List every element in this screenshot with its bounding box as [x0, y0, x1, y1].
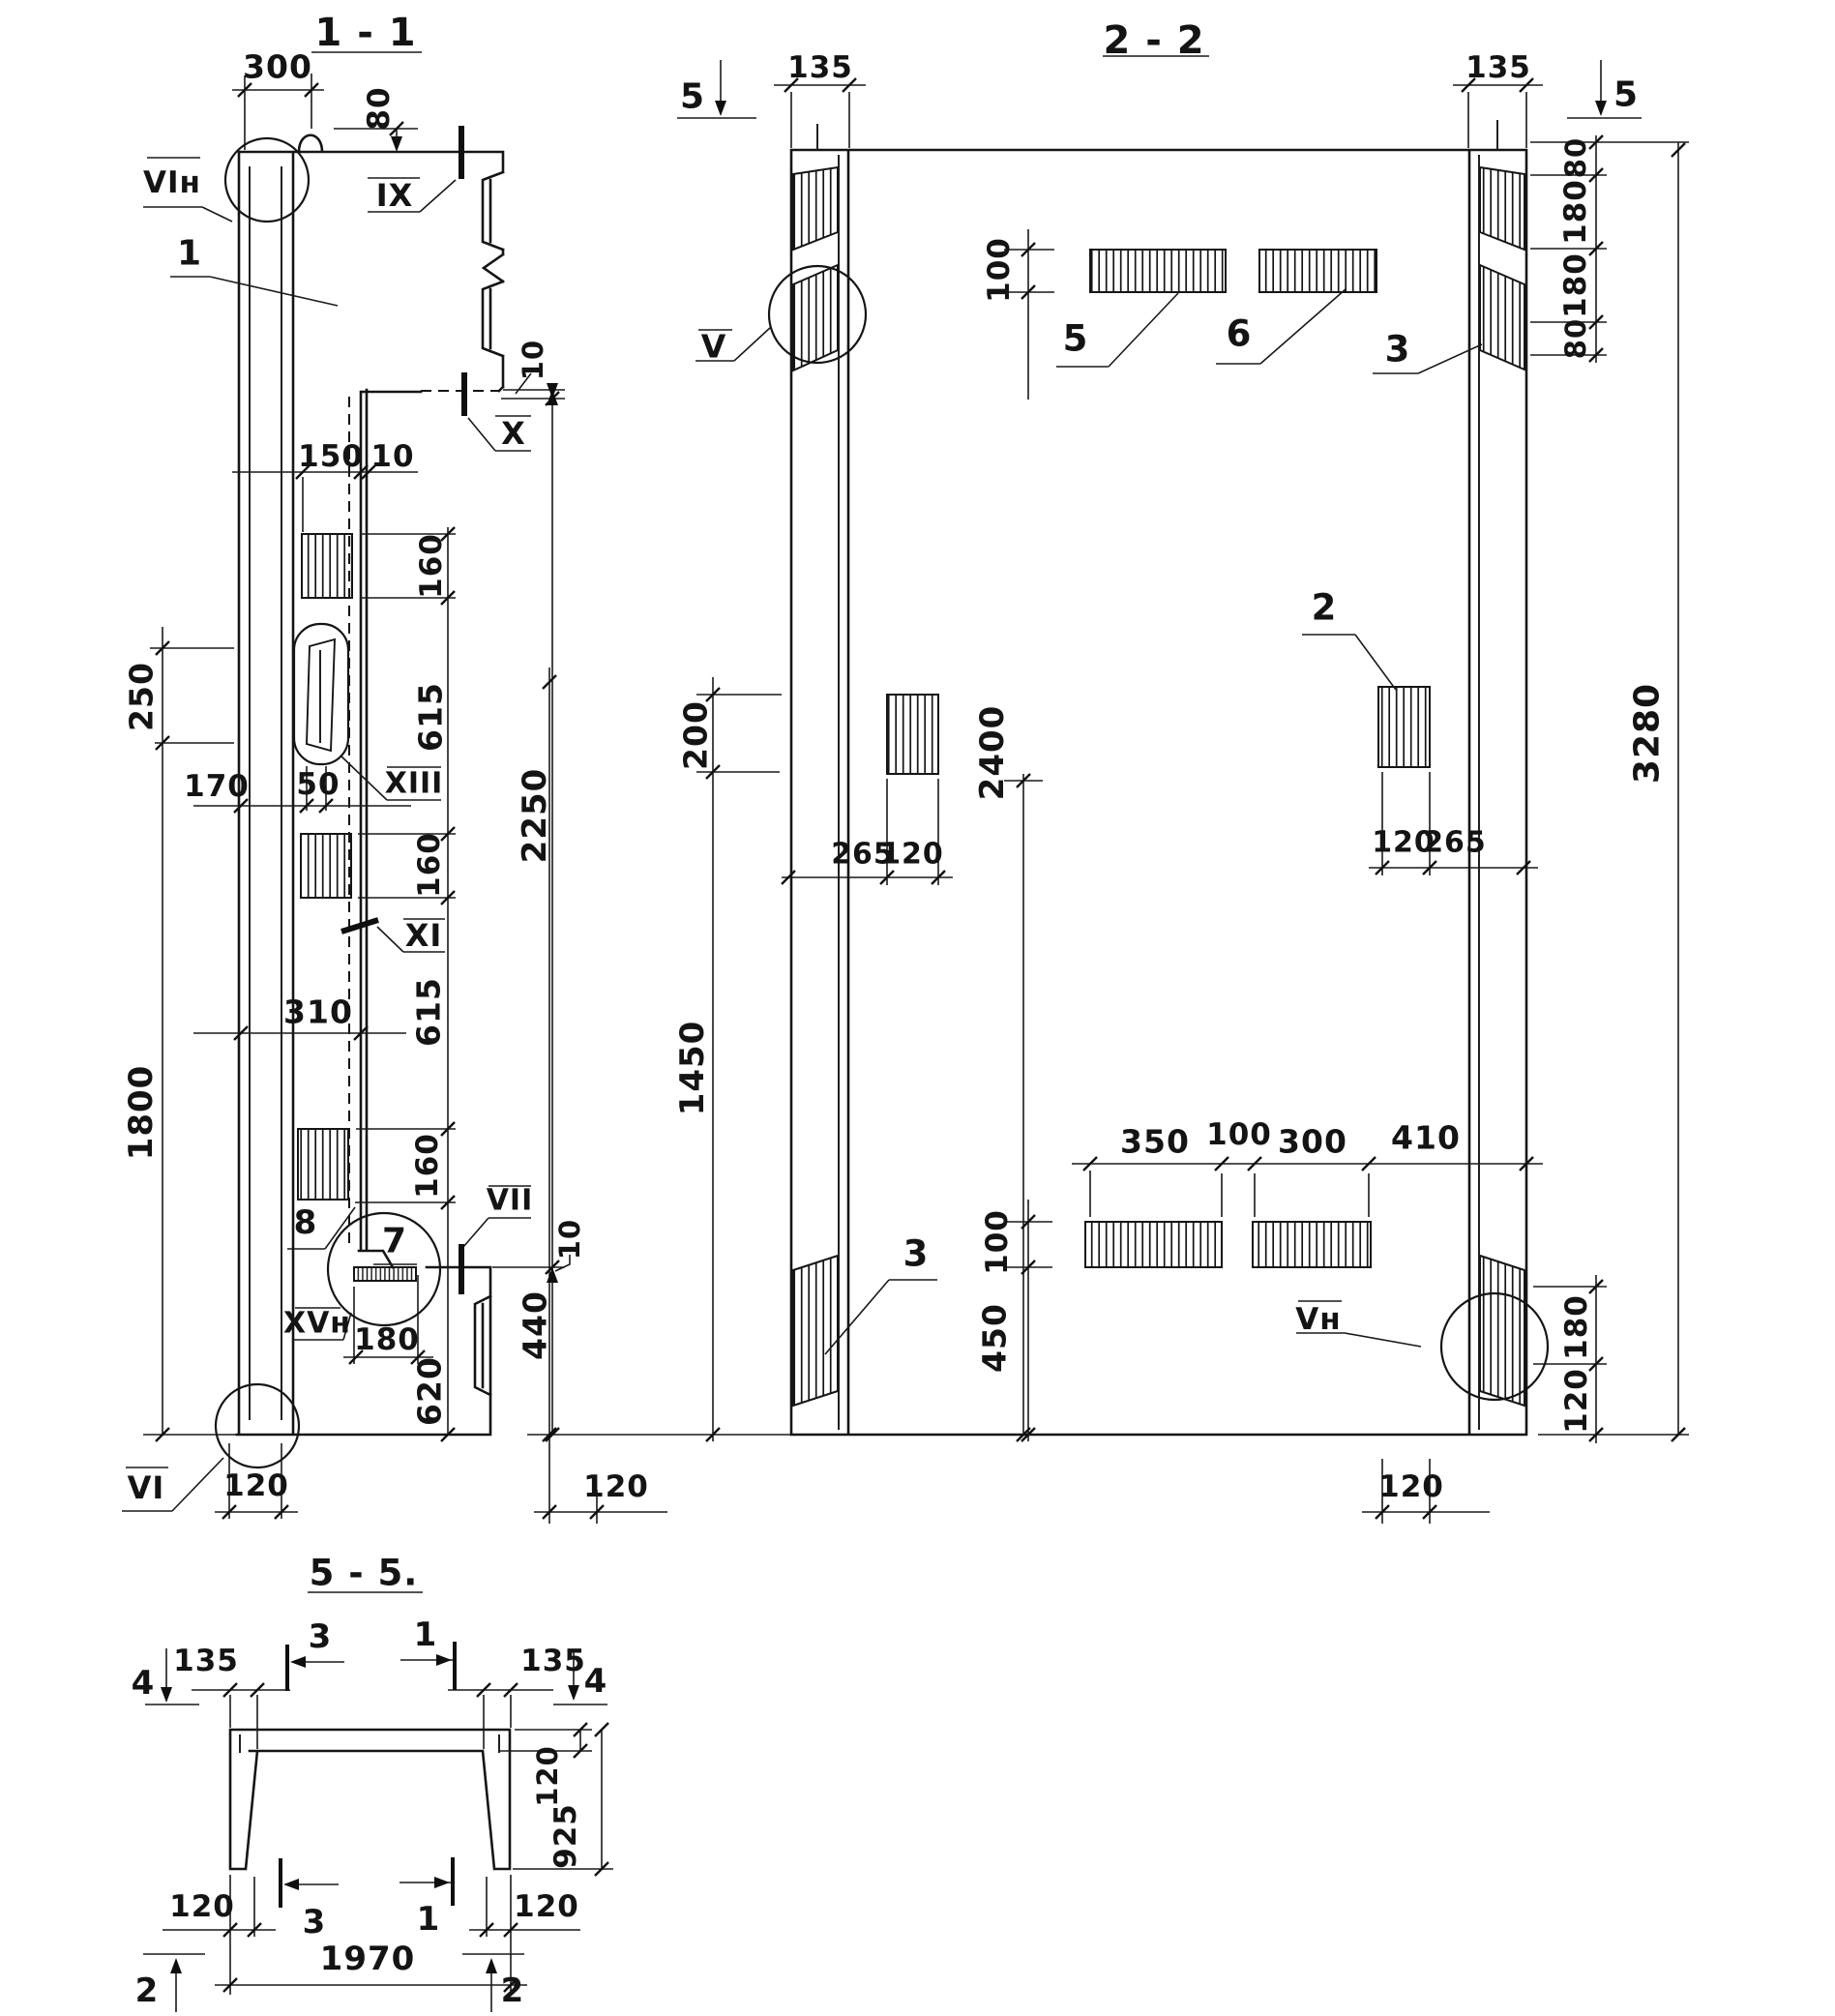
- section-2-2-dim-1450-label: 1450: [673, 1021, 712, 1116]
- section-1-1-dim-250-label: 250: [123, 662, 161, 731]
- section-2-2-dim-200-label: 200: [677, 700, 715, 770]
- section-2-2-detail-v-n-label: Vн: [1295, 1302, 1341, 1337]
- section-1-1-section-ix-label: IX: [376, 177, 414, 214]
- section-2-2-dim-120-bottom-right-label: 120: [1378, 1469, 1444, 1504]
- section-1-1-dim-160-2-label: 160: [412, 832, 447, 898]
- section-5-5-dim-925-label: 925: [548, 1803, 583, 1869]
- section-1-1-detail-xv-n-label: XVн: [283, 1307, 351, 1341]
- section-1-1-dim-300-label: 300: [243, 48, 312, 86]
- section-5-5-dim-120-bottom-left-label: 120: [169, 1889, 235, 1924]
- dimension-arrows: [161, 101, 1607, 1973]
- section-1-1-dim-170-label: 170: [184, 769, 250, 804]
- section-1-1-detail-vi-n-label: VIн: [143, 165, 201, 200]
- section-2-2-dim-120-bottom-left-label: 120: [583, 1469, 649, 1504]
- arrowhead: [715, 101, 726, 116]
- section-2-2-dim-350-label: 350: [1120, 1123, 1190, 1161]
- arrowhead: [436, 1654, 452, 1666]
- section-5-5-title-label: 5 - 5.: [310, 1553, 419, 1594]
- section-1-1-pos-8-label: 8: [294, 1203, 318, 1242]
- section-2-2-dim-120-bottom-right-v-label: 120: [1559, 1368, 1594, 1434]
- arrowhead: [161, 1687, 172, 1703]
- key-slot-3: [298, 1129, 348, 1200]
- section-5-5-marker-4-right-label: 4: [584, 1662, 608, 1701]
- section-2-2-dim-3280-label: 3280: [1628, 683, 1668, 784]
- section-1-1-section-xi-label: XI: [405, 917, 443, 954]
- arrowhead: [486, 1958, 497, 1973]
- section-2-2-pos-2-label: 2: [1312, 587, 1338, 629]
- section-2-2-dim-450-label: 450: [976, 1303, 1014, 1373]
- dimension-ticks: [156, 78, 1685, 1992]
- section-1-1-dim-160-3-label: 160: [410, 1133, 445, 1199]
- section-1-1-section-vii-label: VII: [487, 1184, 534, 1218]
- channel-outline: [230, 1730, 510, 1869]
- section-2-2-dim-80-top-1-label: 80: [1559, 137, 1592, 178]
- section-2-2-dim-180-top-1-label: 180: [1558, 179, 1593, 245]
- embed-square-right: [1378, 687, 1430, 767]
- section-5-5-dim-1970-label: 1970: [320, 1940, 416, 1978]
- arrowhead: [1595, 101, 1607, 116]
- shelf-plate: [354, 1267, 416, 1281]
- section-2-2-dim-80-top-2-label: 80: [1559, 318, 1592, 359]
- section-2-2-dim-100-top-label: 100: [982, 237, 1017, 303]
- panel-outline: [237, 135, 503, 1435]
- section-5-5-dim-120-top-label: 120: [531, 1745, 564, 1807]
- arrowhead: [283, 1879, 299, 1890]
- section-2-2-dim-265-right-label: 265: [1423, 826, 1487, 860]
- section-1-1-section-x-label: X: [501, 415, 526, 452]
- embed-bar-bottom-a: [1085, 1222, 1222, 1267]
- section-2-2-marker-5-left-label: 5: [680, 77, 705, 117]
- section-1-1-dim-50-label: 50: [296, 767, 340, 802]
- embed-square-left: [887, 695, 938, 774]
- section-1-1-pos-1-label: 1: [177, 234, 202, 274]
- section-2-2-geometry: [527, 56, 1689, 1524]
- section-1-1-title-label: 1 - 1: [314, 11, 416, 55]
- section-1-1-dim-620-label: 620: [411, 1356, 449, 1426]
- section-2-2-dim-135-left-label: 135: [787, 50, 853, 85]
- technical-drawing: 1 - 130080VIнIX110X15010160250615XIII170…: [0, 0, 1835, 2016]
- section-2-2-pos-5-label: 5: [1063, 318, 1089, 360]
- section-5-5-marker-3-bottom-label: 3: [303, 1903, 327, 1942]
- section-1-1-dim-310-label: 310: [283, 993, 353, 1031]
- arrowhead: [547, 1267, 558, 1283]
- section-5-5-dim-135-right-label: 135: [520, 1644, 586, 1678]
- section-5-5-marker-2-right-label: 2: [501, 1972, 525, 2010]
- section-1-1-dim-2250-label: 2250: [516, 768, 554, 864]
- section-1-1-dim-440-label: 440: [517, 1290, 554, 1360]
- section-5-5-dim-120-bottom-right-label: 120: [514, 1889, 579, 1924]
- section-2-2-pos-3-top-label: 3: [1385, 329, 1411, 371]
- labels-layer: 1 - 130080VIнIX110X15010160250615XIII170…: [122, 11, 1668, 2010]
- arrowhead: [170, 1958, 182, 1973]
- section-5-5-marker-4-left-label: 4: [132, 1664, 156, 1703]
- section-5-5-marker-2-left-label: 2: [135, 1972, 160, 2010]
- section-2-2-marker-5-right-label: 5: [1613, 75, 1639, 115]
- arrowhead: [434, 1877, 450, 1888]
- section-2-2-dim-135-right-label: 135: [1465, 50, 1531, 85]
- section-2-2-pos-6-label: 6: [1227, 313, 1253, 355]
- slot-insert: [307, 639, 335, 751]
- section-1-1-dim-120-label: 120: [223, 1468, 289, 1503]
- arrowhead: [391, 136, 402, 152]
- embed-bar-5: [1090, 250, 1226, 292]
- arrowhead: [568, 1685, 579, 1701]
- key-slot-1: [302, 534, 352, 598]
- section-2-2-dim-180-bottom-label: 180: [1559, 1294, 1594, 1360]
- section-5-5-marker-3-top-label: 3: [309, 1617, 333, 1656]
- slot-oval: [294, 624, 348, 764]
- section-2-2-title-label: 2 - 2: [1103, 18, 1204, 63]
- section-1-1-pos-7-label: 7: [382, 1222, 407, 1261]
- tick-marks: [156, 78, 1685, 1992]
- section-1-1-dim-150-label: 150: [298, 439, 364, 474]
- section-2-2-dim-300-label: 300: [1278, 1123, 1347, 1161]
- key-slot-2: [301, 834, 351, 898]
- section-2-2-dim-2400-label: 2400: [973, 705, 1012, 801]
- hidden-lines: [349, 391, 499, 1248]
- section-2-2-dim-120-mid-left-label: 120: [880, 838, 944, 872]
- embed-bar-bottom-b: [1253, 1222, 1371, 1267]
- section-1-1-dim-80-label: 80: [362, 86, 397, 130]
- arrowhead: [290, 1656, 306, 1668]
- section-1-1-dim-180-label: 180: [354, 1322, 420, 1357]
- arrowhead: [547, 383, 558, 399]
- section-5-5-marker-1-bottom-label: 1: [417, 1900, 441, 1939]
- section-1-1-dim-1800-label: 1800: [122, 1065, 161, 1161]
- section-1-1-dim-615-1-label: 615: [412, 682, 450, 752]
- cut-mark-bars: [281, 1642, 455, 1908]
- embed-bar-6: [1259, 250, 1376, 292]
- section-1-1-section-xiii-label: XIII: [385, 767, 444, 801]
- section-2-2-dim-100-bottom-v-label: 100: [980, 1209, 1015, 1275]
- rib-rebar-zones: [793, 167, 1524, 1406]
- section-1-1-detail-vi-label: VI: [128, 1469, 165, 1506]
- section-1-1-dim-10-shelf-label: 10: [553, 1219, 586, 1260]
- section-2-2-dim-410-label: 410: [1391, 1119, 1461, 1157]
- section-2-2-dim-180-top-2-label: 180: [1558, 252, 1593, 318]
- section-2-2-pos-3-bottom-label: 3: [903, 1233, 930, 1275]
- section-1-1-dim-615-2-label: 615: [410, 977, 448, 1047]
- detail-circle-vi: [216, 1384, 299, 1468]
- section-2-2-detail-v-label: V: [701, 328, 727, 366]
- section-1-1-dim-10-label: 10: [370, 439, 414, 474]
- drawing-sheet: 1 - 130080VIнIX110X15010160250615XIII170…: [0, 0, 1835, 2016]
- section-1-1-dim-160-1-label: 160: [414, 533, 449, 599]
- section-5-5-marker-1-top-label: 1: [414, 1616, 438, 1654]
- section-5-5-dim-135-left-label: 135: [173, 1644, 239, 1678]
- section-1-1-dim-10-ledge-label: 10: [517, 340, 549, 380]
- rebar-lines: [250, 166, 281, 1420]
- section-2-2-dim-100-bottom-h-label: 100: [1206, 1117, 1272, 1152]
